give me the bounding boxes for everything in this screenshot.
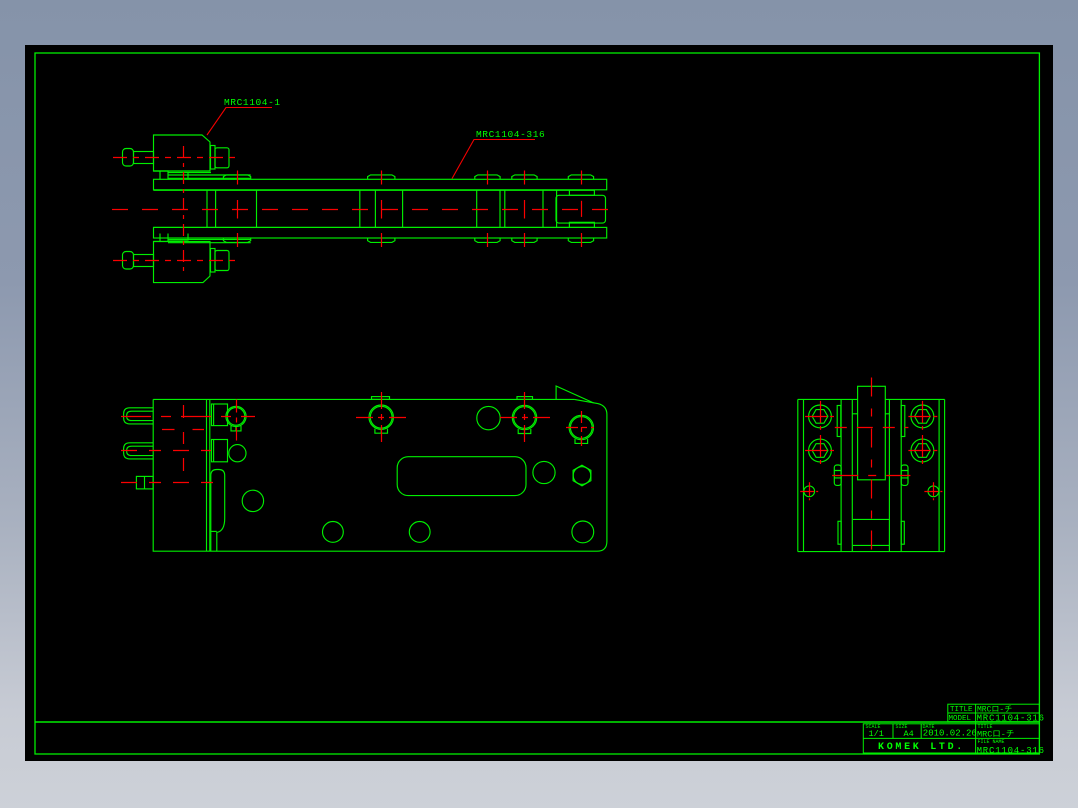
svg-text:1/1: 1/1 — [869, 729, 884, 739]
svg-text:TITLE: TITLE — [950, 706, 973, 714]
svg-text:MRC1104-1: MRC1104-1 — [224, 97, 281, 108]
svg-text:KOMEK LTD.: KOMEK LTD. — [878, 742, 965, 753]
svg-text:MRC1104-316: MRC1104-316 — [977, 746, 1045, 756]
svg-text:FILE NAME: FILE NAME — [978, 739, 1005, 745]
svg-text:MRCロ-チ: MRCロ-チ — [977, 730, 1014, 740]
svg-text:MRC1104-316: MRC1104-316 — [977, 714, 1045, 724]
svg-text:2010.02.26: 2010.02.26 — [923, 729, 977, 739]
svg-text:A4: A4 — [904, 729, 914, 739]
svg-text:MRC1104-316: MRC1104-316 — [476, 129, 545, 140]
svg-text:MODEL: MODEL — [949, 715, 972, 723]
